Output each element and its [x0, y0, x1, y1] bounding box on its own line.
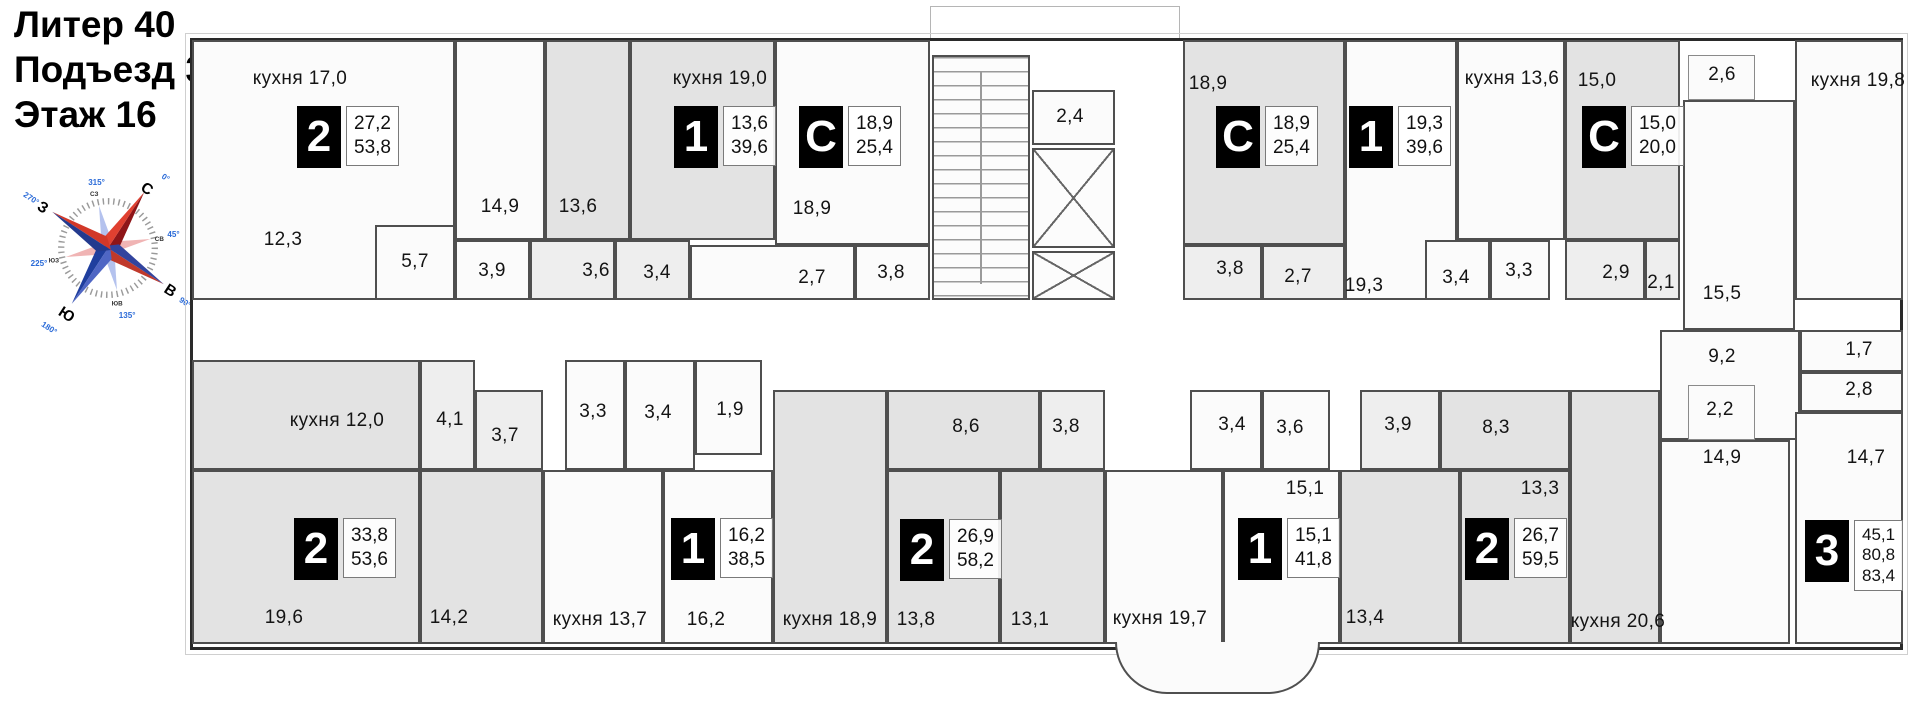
room-area-label: 3,4 — [1218, 414, 1246, 436]
room-area-label: 3,3 — [579, 401, 607, 423]
total-area: 53,6 — [351, 548, 388, 572]
room-area-label: 12,3 — [264, 229, 303, 251]
compass-nw-degrees: 315° — [88, 178, 105, 187]
compass-ne-label: СВ — [155, 236, 165, 243]
room-area-label: 19,6 — [265, 607, 304, 629]
living-area: 18,9 — [1273, 112, 1310, 136]
apartment-badge-studio-c: С 15,020,0 — [1582, 106, 1684, 168]
living-area: 26,7 — [1522, 524, 1559, 548]
room-area-label: 14,9 — [1703, 447, 1742, 469]
room-area-label: 15,1 — [1286, 478, 1325, 500]
room-area-label: 1,9 — [716, 399, 744, 421]
apartment-badge-2room-c: 2 26,958,2 — [900, 519, 1002, 581]
room-area-label: 8,6 — [952, 416, 980, 438]
apartment-badge-studio-a: С 18,925,4 — [799, 106, 901, 168]
kitchen-area-label: кухня 13,6 — [1465, 68, 1560, 90]
room-area-label: 18,9 — [793, 198, 832, 220]
room-area-label: 3,4 — [1442, 267, 1470, 289]
room-area-label: 3,9 — [478, 260, 506, 282]
room-area-label: 5,7 — [401, 251, 429, 273]
room-area-label: 13,3 — [1521, 478, 1560, 500]
apartment-type-number: С — [799, 106, 843, 168]
apartment-type-number: 1 — [674, 106, 718, 168]
compass-west-degrees: 270° — [22, 190, 41, 207]
room-area-label: 14,9 — [481, 196, 520, 218]
room-area-label: 3,3 — [1505, 260, 1533, 282]
compass-north-label: С — [138, 179, 157, 199]
compass-se-label: ЮВ — [112, 301, 123, 308]
page-title: Литер 40 Подъезд 3 Этаж 16 — [14, 2, 206, 137]
room-area-label: 3,9 — [1384, 414, 1412, 436]
room-area-label: 3,6 — [582, 260, 610, 282]
compass-north-degrees: 0° — [160, 172, 171, 184]
stairwell — [932, 55, 1030, 300]
living-area: 15,0 — [1639, 112, 1676, 136]
apartment-badge-1room-c: 1 16,238,5 — [671, 518, 773, 580]
apartment-type-number: 2 — [294, 518, 338, 580]
total-area: 25,4 — [856, 136, 893, 160]
room-area-label: 2,6 — [1708, 64, 1736, 86]
room-area-label: 14,2 — [430, 607, 469, 629]
apartment-type-number: 1 — [1238, 518, 1282, 580]
kitchen-area-label: кухня 18,9 — [783, 609, 878, 631]
room-area-label: 14,7 — [1847, 447, 1886, 469]
stair-divider — [980, 71, 982, 283]
apartment-badge-2room-d: 2 26,759,5 — [1465, 518, 1567, 580]
room-hallway-studio-a — [690, 245, 855, 300]
apartment-badge-1room-a: 1 13,639,6 — [674, 106, 776, 168]
compass-sw-degrees: 225° — [31, 259, 48, 268]
apartment-type-number: 3 — [1805, 520, 1849, 582]
kitchen-area-label: кухня 13,7 — [553, 609, 648, 631]
total-area: 39,6 — [1406, 136, 1443, 160]
room-area-label: 13,1 — [1011, 609, 1050, 631]
living-area: 16,2 — [728, 524, 765, 548]
room-area-label: 3,8 — [1216, 258, 1244, 280]
living-area: 33,8 — [351, 524, 388, 548]
total-area: 53,8 — [354, 136, 391, 160]
room-area-label: 2,2 — [1706, 399, 1734, 421]
room-area-label: 15,5 — [1703, 283, 1742, 305]
kitchen-area-label: кухня 20,6 — [1571, 611, 1666, 633]
compass-south-label: Ю — [55, 303, 78, 326]
room-kitchen-apt2d — [1570, 390, 1660, 644]
compass-ne-degrees: 45° — [167, 230, 179, 239]
apartment-badge-3room: 3 45,180,883,4 — [1805, 520, 1903, 591]
kitchen-area-label: кухня 19,0 — [673, 68, 768, 90]
total-area: 80,8 — [1862, 545, 1895, 565]
room-area-label: 3,4 — [644, 402, 672, 424]
room-area-label: 16,2 — [687, 609, 726, 631]
room-area-label: 2,7 — [798, 267, 826, 289]
kitchen-area-label: кухня 12,0 — [290, 410, 385, 432]
room-area-label: 9,2 — [1708, 346, 1736, 368]
room-area-label: 13,6 — [559, 196, 598, 218]
title-floor: Этаж 16 — [14, 92, 206, 137]
total-area: 38,5 — [728, 548, 765, 572]
kitchen-area-label: кухня 19,8 — [1811, 70, 1906, 92]
apartment-badge-2room-a: 2 27,253,8 — [297, 106, 399, 168]
total-area: 59,5 — [1522, 548, 1559, 572]
bay-window — [1115, 642, 1320, 694]
room-area-label: 2,4 — [1056, 106, 1084, 128]
total-area-with-balcony: 83,4 — [1862, 566, 1895, 586]
title-liter: Литер 40 — [14, 2, 206, 47]
elevator-shaft-1 — [1032, 148, 1115, 248]
apartment-badge-1room-b: 1 19,339,6 — [1349, 106, 1451, 168]
compass-se-degrees: 135° — [119, 311, 136, 320]
room-bedroom2-apt3 — [1660, 440, 1790, 644]
living-area: 26,9 — [957, 525, 994, 549]
room-area-label: 8,3 — [1482, 417, 1510, 439]
compass-sw-label: ЮЗ — [49, 257, 59, 264]
total-area: 39,6 — [731, 136, 768, 160]
room-area-label: 2,9 — [1602, 262, 1630, 284]
living-area: 15,1 — [1295, 524, 1332, 548]
room-area-label: 3,8 — [1052, 416, 1080, 438]
room-area-label: 13,4 — [1346, 607, 1385, 629]
apartment-type-number: 2 — [1465, 518, 1509, 580]
room-area-label: 4,1 — [436, 409, 464, 431]
elevator-shaft-2 — [1032, 251, 1115, 300]
living-area: 13,6 — [731, 112, 768, 136]
room-area-label: 15,0 — [1578, 70, 1617, 92]
room-area-label: 3,7 — [491, 425, 519, 447]
apartment-type-number: С — [1582, 106, 1626, 168]
compass-rose-icon: С 0° В 90° Ю 180° З 270° СЗ 315° СВ 45° … — [18, 158, 198, 338]
title-entrance: Подъезд 3 — [14, 47, 206, 92]
room-area-label: 1,7 — [1845, 339, 1873, 361]
room-area-label: 18,9 — [1189, 73, 1228, 95]
room-area-label: 3,4 — [643, 262, 671, 284]
room-area-label: 3,6 — [1276, 417, 1304, 439]
room-area-label: 2,7 — [1284, 266, 1312, 288]
room-area-label: 3,8 — [877, 262, 905, 284]
apartment-type-number: 1 — [1349, 106, 1393, 168]
compass-nw-label: СЗ — [90, 191, 98, 198]
total-area: 20,0 — [1639, 136, 1676, 160]
apartment-badge-studio-b: С 18,925,4 — [1216, 106, 1318, 168]
room-area-label: 19,3 — [1345, 275, 1384, 297]
living-area: 27,2 — [354, 112, 391, 136]
kitchen-area-label: кухня 19,7 — [1113, 608, 1208, 630]
total-area: 58,2 — [957, 549, 994, 573]
living-area: 45,1 — [1862, 525, 1895, 545]
room-area-label: 2,8 — [1845, 379, 1873, 401]
apartment-type-number: 2 — [900, 519, 944, 581]
compass-east-label: В — [161, 281, 180, 301]
apartment-badge-2room-b: 2 33,853,6 — [294, 518, 396, 580]
floor-plan-page: Литер 40 Подъезд 3 Этаж 16 С 0° В 90° Ю — [0, 0, 1920, 705]
apartment-type-number: С — [1216, 106, 1260, 168]
room-area-label: 13,8 — [897, 609, 936, 631]
room-kitchen-apt2c — [773, 390, 887, 644]
total-area: 41,8 — [1295, 548, 1332, 572]
apartment-type-number: 1 — [671, 518, 715, 580]
living-area: 18,9 — [856, 112, 893, 136]
apartment-type-number: 2 — [297, 106, 341, 168]
apartment-badge-1room-d: 1 15,141,8 — [1238, 518, 1340, 580]
room-area-label: 2,1 — [1647, 272, 1675, 294]
living-area: 19,3 — [1406, 112, 1443, 136]
kitchen-area-label: кухня 17,0 — [253, 68, 348, 90]
total-area: 25,4 — [1273, 136, 1310, 160]
compass-south-degrees: 180° — [40, 320, 59, 337]
